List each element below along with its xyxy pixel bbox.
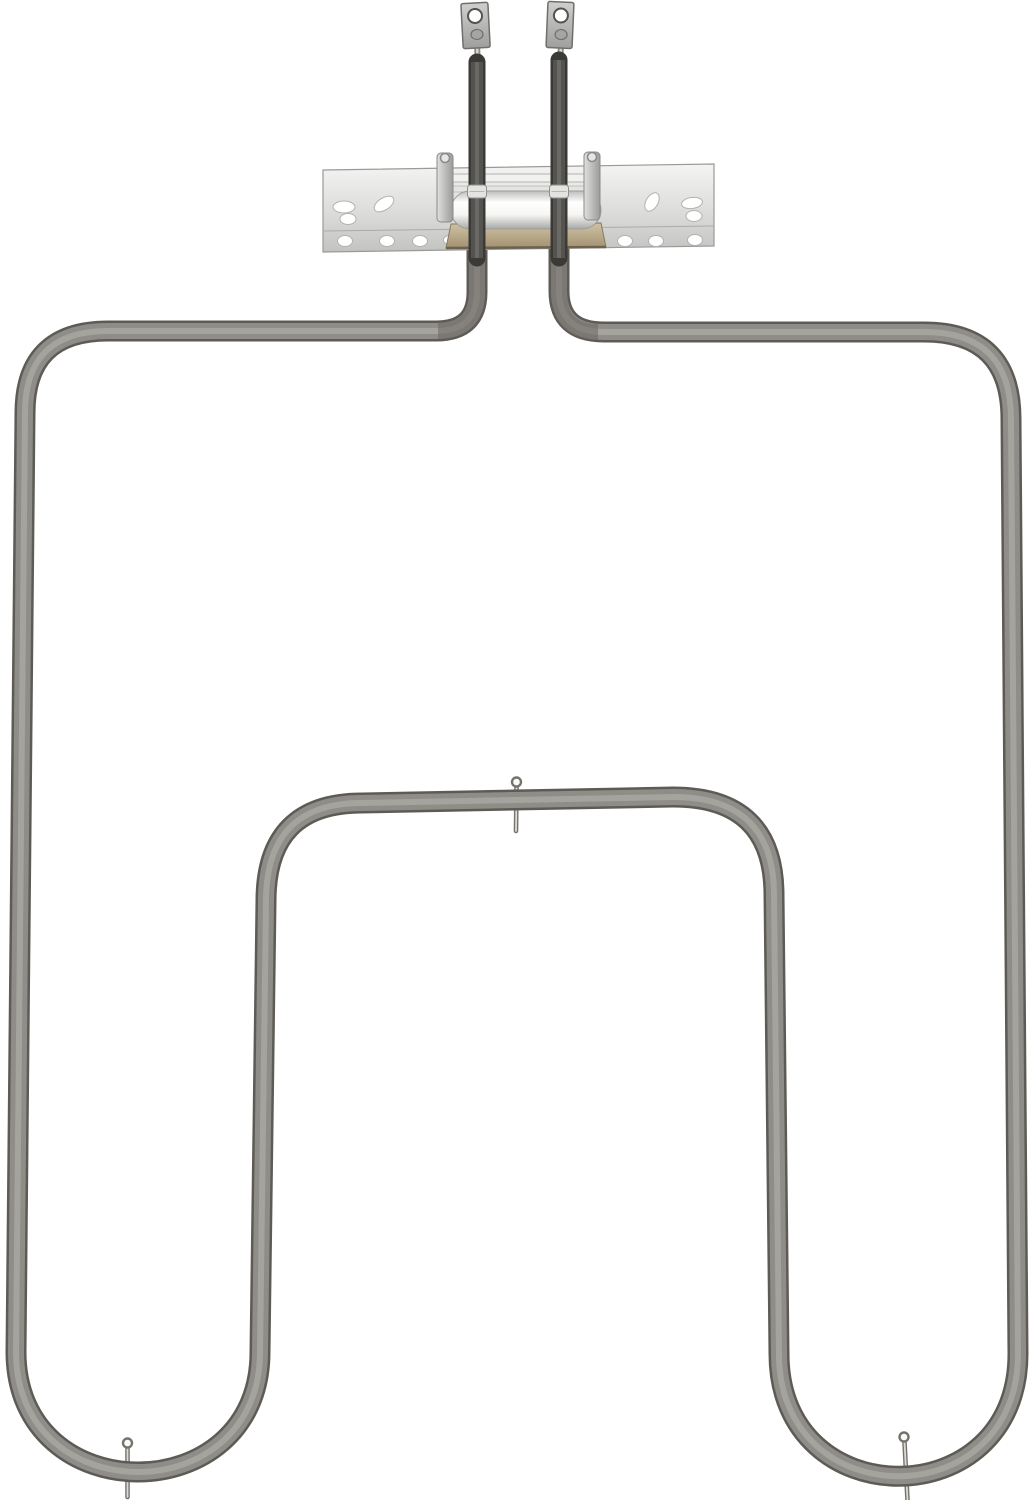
pivot-rod	[440, 174, 598, 182]
support-pin-loop	[900, 1433, 909, 1442]
bracket-hole	[333, 201, 355, 213]
product-image	[0, 0, 1036, 1500]
terminal-dimple	[555, 29, 567, 40]
terminal-hole	[468, 9, 483, 24]
bracket-hole	[338, 236, 353, 247]
bracket-hole	[618, 236, 633, 247]
terminal-dimple	[471, 29, 484, 40]
clip-rivet	[441, 154, 450, 163]
spade-terminal	[461, 2, 490, 48]
clip-rivet	[588, 153, 597, 162]
element-svg	[0, 0, 1036, 1500]
bracket-hole	[649, 236, 664, 247]
bracket-hole	[688, 235, 703, 246]
support-pin-loop	[123, 1439, 132, 1448]
terminal-hole	[554, 8, 569, 23]
bracket-clip	[437, 153, 453, 222]
support-pin-loop	[512, 778, 521, 787]
bracket-hole	[340, 214, 356, 225]
bracket-hole	[380, 236, 395, 247]
spade-terminal	[546, 1, 574, 48]
bracket-hole	[686, 211, 702, 222]
bracket-hole	[413, 236, 428, 247]
